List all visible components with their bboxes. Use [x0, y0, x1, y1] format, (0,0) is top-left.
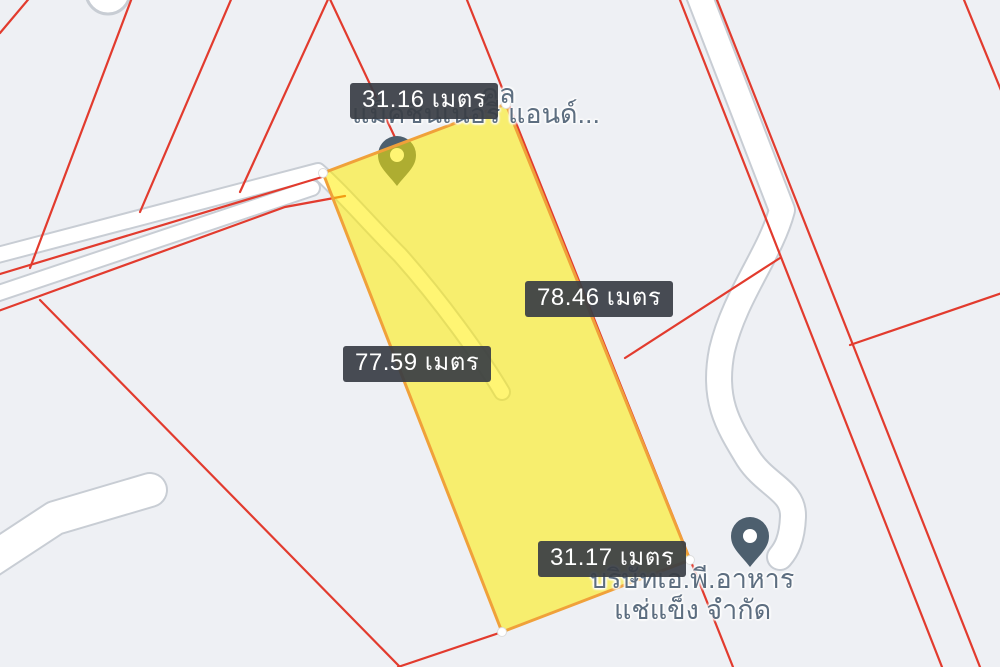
map-canvas[interactable]: คล แม็คชีนเนอรี แอนด์... บริษัทเอ.พี.อาห… — [0, 0, 1000, 667]
measurement-label-bottom: 31.17 เมตร — [538, 541, 686, 577]
poi-bottom-name-line2[interactable]: แช่แข็ง จำกัด — [614, 596, 771, 626]
measurement-label-top: 31.16 เมตร — [350, 83, 498, 119]
vertex-dot — [498, 628, 507, 637]
measurement-label-right: 78.46 เมตร — [525, 281, 673, 317]
measurement-label-left: 77.59 เมตร — [343, 346, 491, 382]
vertex-dot — [319, 169, 328, 178]
pin-hole — [743, 529, 757, 543]
